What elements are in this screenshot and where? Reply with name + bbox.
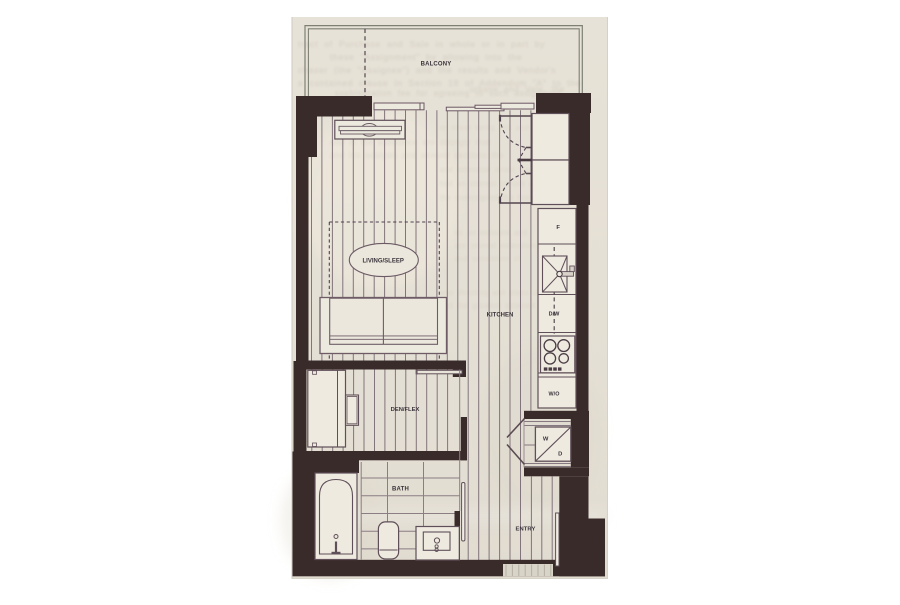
svg-text:and his analysis and several s: and his analysis and several sections th… — [330, 151, 504, 160]
svg-text:or street being this and: or street being this and — [440, 125, 529, 132]
svg-text:D: D — [558, 451, 562, 457]
svg-text:KITCHEN: KITCHEN — [487, 312, 514, 318]
svg-text:DEN/FLEX: DEN/FLEX — [391, 407, 420, 413]
svg-text:tract of Purchase and Sale in: tract of Purchase and Sale in whole or i… — [298, 39, 545, 49]
svg-text:and sometimes of: and sometimes of — [455, 256, 521, 263]
svg-text:D/W: D/W — [549, 311, 561, 317]
svg-text:and the greatest obtained: and the greatest obtained — [440, 303, 535, 310]
svg-text:BALCONY: BALCONY — [421, 62, 452, 68]
svg-text:as an estimate and: as an estimate and — [455, 230, 527, 237]
svg-text:W: W — [543, 437, 549, 443]
svg-text:BATH: BATH — [392, 487, 409, 493]
svg-text:F: F — [556, 225, 560, 231]
svg-text:and otherwise street the: and otherwise street the — [440, 167, 530, 174]
svg-text:ENTRY: ENTRY — [516, 526, 536, 532]
svg-text:are several extensions: are several extensions — [455, 243, 538, 250]
svg-text:urbane and Vale, the: urbane and Vale, the — [470, 85, 565, 94]
svg-text:W/O: W/O — [548, 392, 559, 398]
svg-text:LIVING/SLEEP: LIVING/SLEEP — [363, 258, 404, 264]
svg-text:the undersigned the known: the undersigned the known — [440, 195, 540, 202]
svg-text:had an interest carried at: had an interest carried at — [440, 181, 536, 188]
svg-text:these "Assignment" by allowing: these "Assignment" by allowing into the — [330, 52, 522, 62]
